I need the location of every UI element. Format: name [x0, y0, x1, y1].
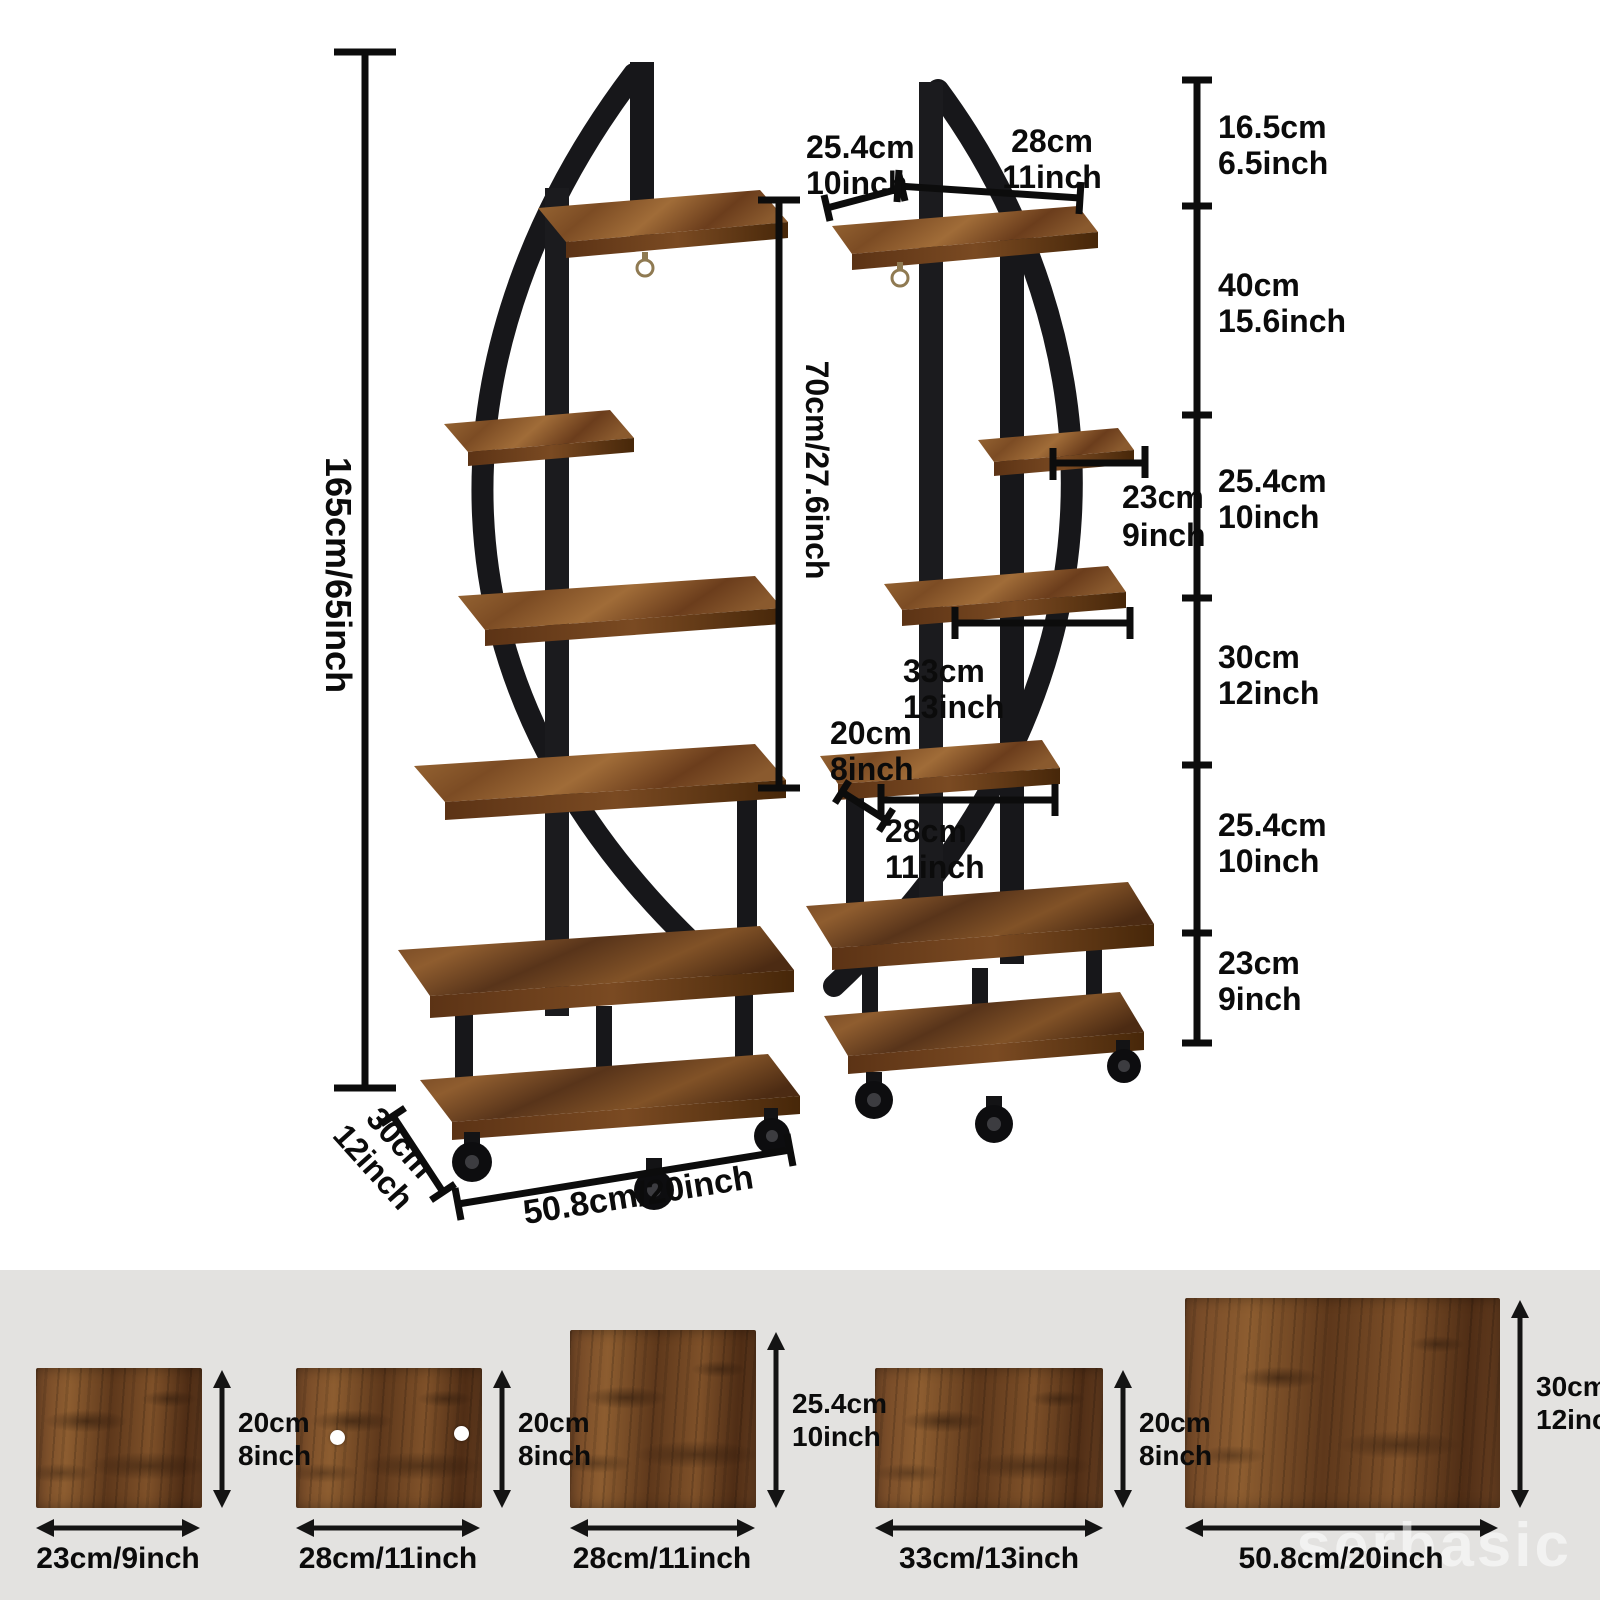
board-1-height-inch: 8inch [238, 1439, 311, 1472]
right-top-width-inch: 11inch [1002, 159, 1102, 195]
board-4-height-cm: 20cm [1139, 1406, 1212, 1439]
segment-5-cm: 25.4cm [1218, 807, 1327, 843]
left-base-width-label: 50.8cm/20inch [520, 1158, 756, 1232]
board-2-height-cm: 20cm [518, 1406, 591, 1439]
left-base-depth-label: 30cm 12inch [326, 1093, 447, 1217]
board-4-height-label: 20cm 8inch [1139, 1406, 1212, 1472]
board-2-height-inch: 8inch [518, 1439, 591, 1472]
segment-4-cm: 30cm [1218, 639, 1300, 675]
tier4-width-inch: 11inch [885, 849, 985, 885]
segment-1-inch: 6.5inch [1218, 145, 1328, 181]
right-top-depth-inch: 10inch [806, 165, 907, 201]
shelf-board-size-panel: serbasic 20cm 8inch 20cm 8inch 25.4cm 10… [0, 1270, 1600, 1600]
right-top-width-cm: 28cm [1011, 123, 1093, 159]
board-4-height-inch: 8inch [1139, 1439, 1212, 1472]
segment-5-inch: 10inch [1218, 843, 1319, 879]
segment-3-cm: 25.4cm [1218, 463, 1327, 499]
tier2-depth-inch: 9inch [1122, 517, 1206, 553]
tier4-width-cm: 28cm [885, 813, 967, 849]
segment-2-inch: 15.6inch [1218, 303, 1346, 339]
segment-6-inch: 9inch [1218, 981, 1302, 1017]
tier4-depth-inch: 8inch [830, 751, 914, 787]
tier4-depth-cm: 20cm [830, 715, 912, 751]
board-3-height-inch: 10inch [792, 1420, 887, 1453]
board-3-height-label: 25.4cm 10inch [792, 1387, 887, 1453]
board-3-height-cm: 25.4cm [792, 1387, 887, 1420]
left-inner-height-label: 70cm/27.6inch [799, 361, 835, 580]
segment-6-cm: 23cm [1218, 945, 1300, 981]
plant-stand-diagram-canvas: 165cm/65inch 70cm/27.6inch 30cm 12inch 5… [0, 0, 1600, 1270]
segment-3-inch: 10inch [1218, 499, 1319, 535]
left-stand-illustration [398, 62, 800, 1210]
tier2-depth-cm: 23cm [1122, 479, 1204, 515]
tier3-width-inch: 13inch [903, 689, 1004, 725]
segment-2-cm: 40cm [1218, 267, 1300, 303]
board-2-width-label: 28cm/11inch [299, 1542, 477, 1576]
left-stand-hook [637, 252, 653, 276]
board-5-height-inch: 12inch [1536, 1403, 1600, 1436]
right-stand-illustration [806, 82, 1154, 1143]
board-5-height-cm: 30cm [1536, 1370, 1600, 1403]
right-stand-shelves [806, 206, 1154, 1074]
board-1-width-label: 23cm/9inch [36, 1542, 199, 1576]
left-overall-height-label: 165cm/65inch [318, 457, 359, 693]
left-stand-right-leg [737, 792, 757, 944]
right-top-depth-cm: 25.4cm [806, 129, 915, 165]
board-3-width-label: 28cm/11inch [573, 1542, 751, 1576]
segment-1-cm: 16.5cm [1218, 109, 1327, 145]
tier3-width-cm: 33cm [903, 653, 985, 689]
board-1-height-cm: 20cm [238, 1406, 311, 1439]
segment-4-inch: 12inch [1218, 675, 1319, 711]
height-scale-labels: 16.5cm 6.5inch 40cm 15.6inch 25.4cm 10in… [1218, 109, 1346, 1017]
board-5-width-label: 50.8cm/20inch [1238, 1542, 1443, 1576]
board-5-height-label: 30cm 12inch [1536, 1370, 1600, 1436]
board-4-width-label: 33cm/13inch [899, 1542, 1079, 1576]
board-2-height-label: 20cm 8inch [518, 1406, 591, 1472]
product-dimension-diagram: 165cm/65inch 70cm/27.6inch 30cm 12inch 5… [0, 0, 1600, 1600]
board-1-height-label: 20cm 8inch [238, 1406, 311, 1472]
